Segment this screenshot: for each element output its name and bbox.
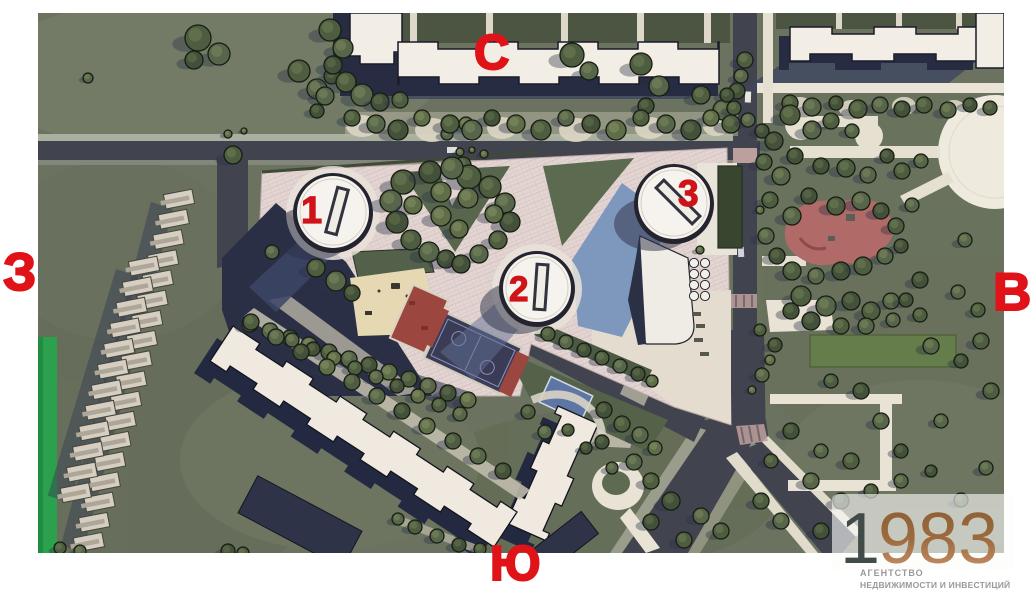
svg-text:983: 983 — [878, 499, 998, 579]
svg-text:3: 3 — [678, 173, 699, 214]
svg-text:З: З — [3, 243, 36, 302]
svg-text:В: В — [993, 263, 1031, 322]
svg-text:НЕДВИЖИМОСТИ И ИНВЕСТИЦИЙ: НЕДВИЖИМОСТИ И ИНВЕСТИЦИЙ — [860, 579, 1010, 590]
svg-text:1: 1 — [301, 190, 322, 232]
svg-text:С: С — [474, 26, 509, 80]
svg-text:Ю: Ю — [490, 537, 541, 591]
svg-text:АГЕНТСТВО: АГЕНТСТВО — [860, 568, 924, 578]
svg-text:1: 1 — [840, 499, 880, 579]
svg-text:2: 2 — [509, 270, 528, 309]
